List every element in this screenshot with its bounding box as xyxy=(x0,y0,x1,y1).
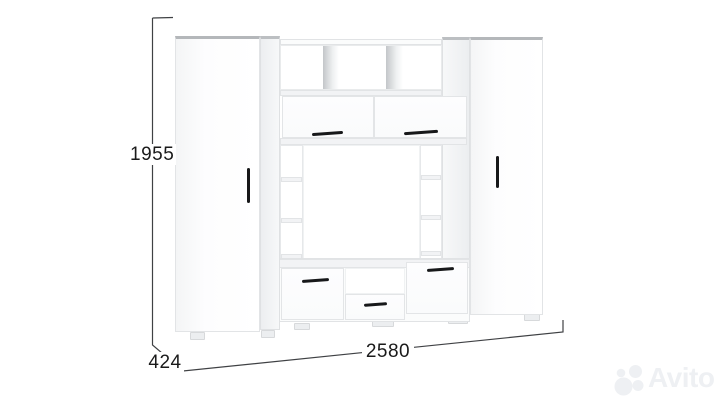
depth-dimension-label: 424 xyxy=(146,352,184,373)
height-depth-width-dimension-line xyxy=(153,18,564,371)
height-dimension-label: 1955 xyxy=(128,144,176,165)
furniture-dimension-diagram: 1955 424 2580 xyxy=(0,0,720,405)
width-dimension-label: 2580 xyxy=(362,341,414,362)
dimension-lines xyxy=(0,0,720,405)
height-extension-tick xyxy=(153,18,174,19)
